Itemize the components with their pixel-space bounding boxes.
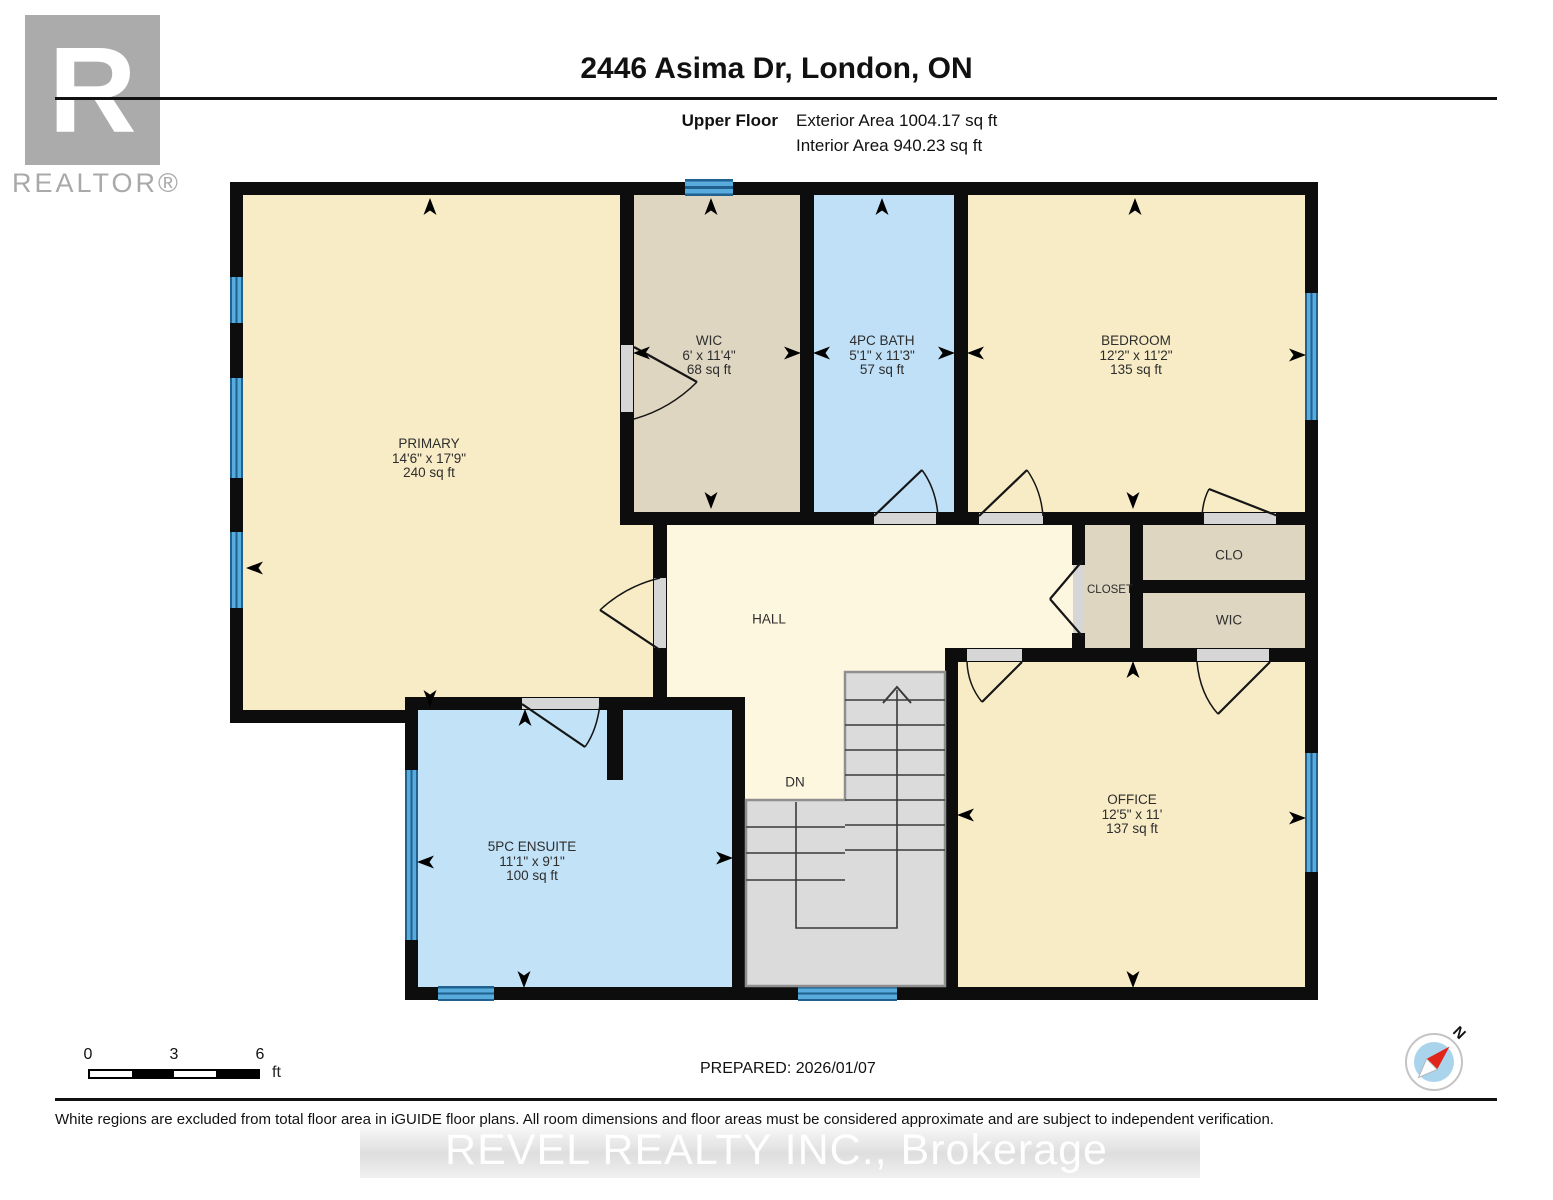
room-label-bedroom: BEDROOM 12'2" x 11'2" 135 sq ft (1099, 334, 1172, 378)
room-label-primary: PRIMARY 14'6" x 17'9" 240 sq ft (392, 437, 466, 481)
room-name: WIC (682, 334, 735, 349)
room-dimensions: 11'1" x 9'1" (488, 855, 577, 870)
brokerage-watermark: REVEL REALTY INC., Brokerage (0, 1126, 1553, 1175)
plan-vector-overlay (0, 0, 1553, 1200)
room-area: 68 sq ft (682, 363, 735, 378)
room-name: 5PC ENSUITE (488, 840, 577, 855)
room-name: 4PC BATH (849, 334, 915, 349)
room-area: 57 sq ft (849, 363, 915, 378)
room-dimensions: 12'5" x 11' (1102, 808, 1163, 823)
footer-divider (55, 1098, 1497, 1101)
clo-label: CLO (1215, 548, 1243, 563)
wic2-label: WIC (1216, 613, 1242, 628)
room-label-ensuite: 5PC ENSUITE 11'1" x 9'1" 100 sq ft (488, 840, 577, 884)
scale-tick-3: 3 (170, 1046, 179, 1064)
room-dimensions: 14'6" x 17'9" (392, 452, 466, 467)
prepared-date-label: PREPARED: 2026/01/07 (700, 1060, 876, 1078)
room-area: 135 sq ft (1099, 363, 1172, 378)
closet-label: CLOSET (1087, 584, 1133, 596)
room-name: BEDROOM (1099, 334, 1172, 349)
room-dimensions: 5'1" x 11'3" (849, 349, 915, 364)
floor-plan-page: R REALTOR® 2446 Asima Dr, London, ON Upp… (0, 0, 1553, 1200)
room-label-office: OFFICE 12'5" x 11' 137 sq ft (1102, 793, 1163, 837)
scale-bar (88, 1069, 260, 1079)
room-area: 100 sq ft (488, 869, 577, 884)
room-name: OFFICE (1102, 793, 1163, 808)
scale-tick-6: 6 (256, 1046, 265, 1064)
room-name: PRIMARY (392, 437, 466, 452)
room-label-wic: WIC 6' x 11'4" 68 sq ft (682, 334, 735, 378)
room-area: 240 sq ft (392, 466, 466, 481)
scale-tick-0: 0 (84, 1046, 93, 1064)
scale-unit-label: ft (272, 1064, 281, 1082)
hall-label: HALL (752, 612, 786, 627)
compass-icon (1406, 1034, 1462, 1090)
room-area: 137 sq ft (1102, 822, 1163, 837)
room-dimensions: 12'2" x 11'2" (1099, 349, 1172, 364)
stairs (746, 672, 945, 986)
room-label-bath: 4PC BATH 5'1" x 11'3" 57 sq ft (849, 334, 915, 378)
room-dimensions: 6' x 11'4" (682, 349, 735, 364)
stairs-down-label: DN (785, 775, 805, 790)
